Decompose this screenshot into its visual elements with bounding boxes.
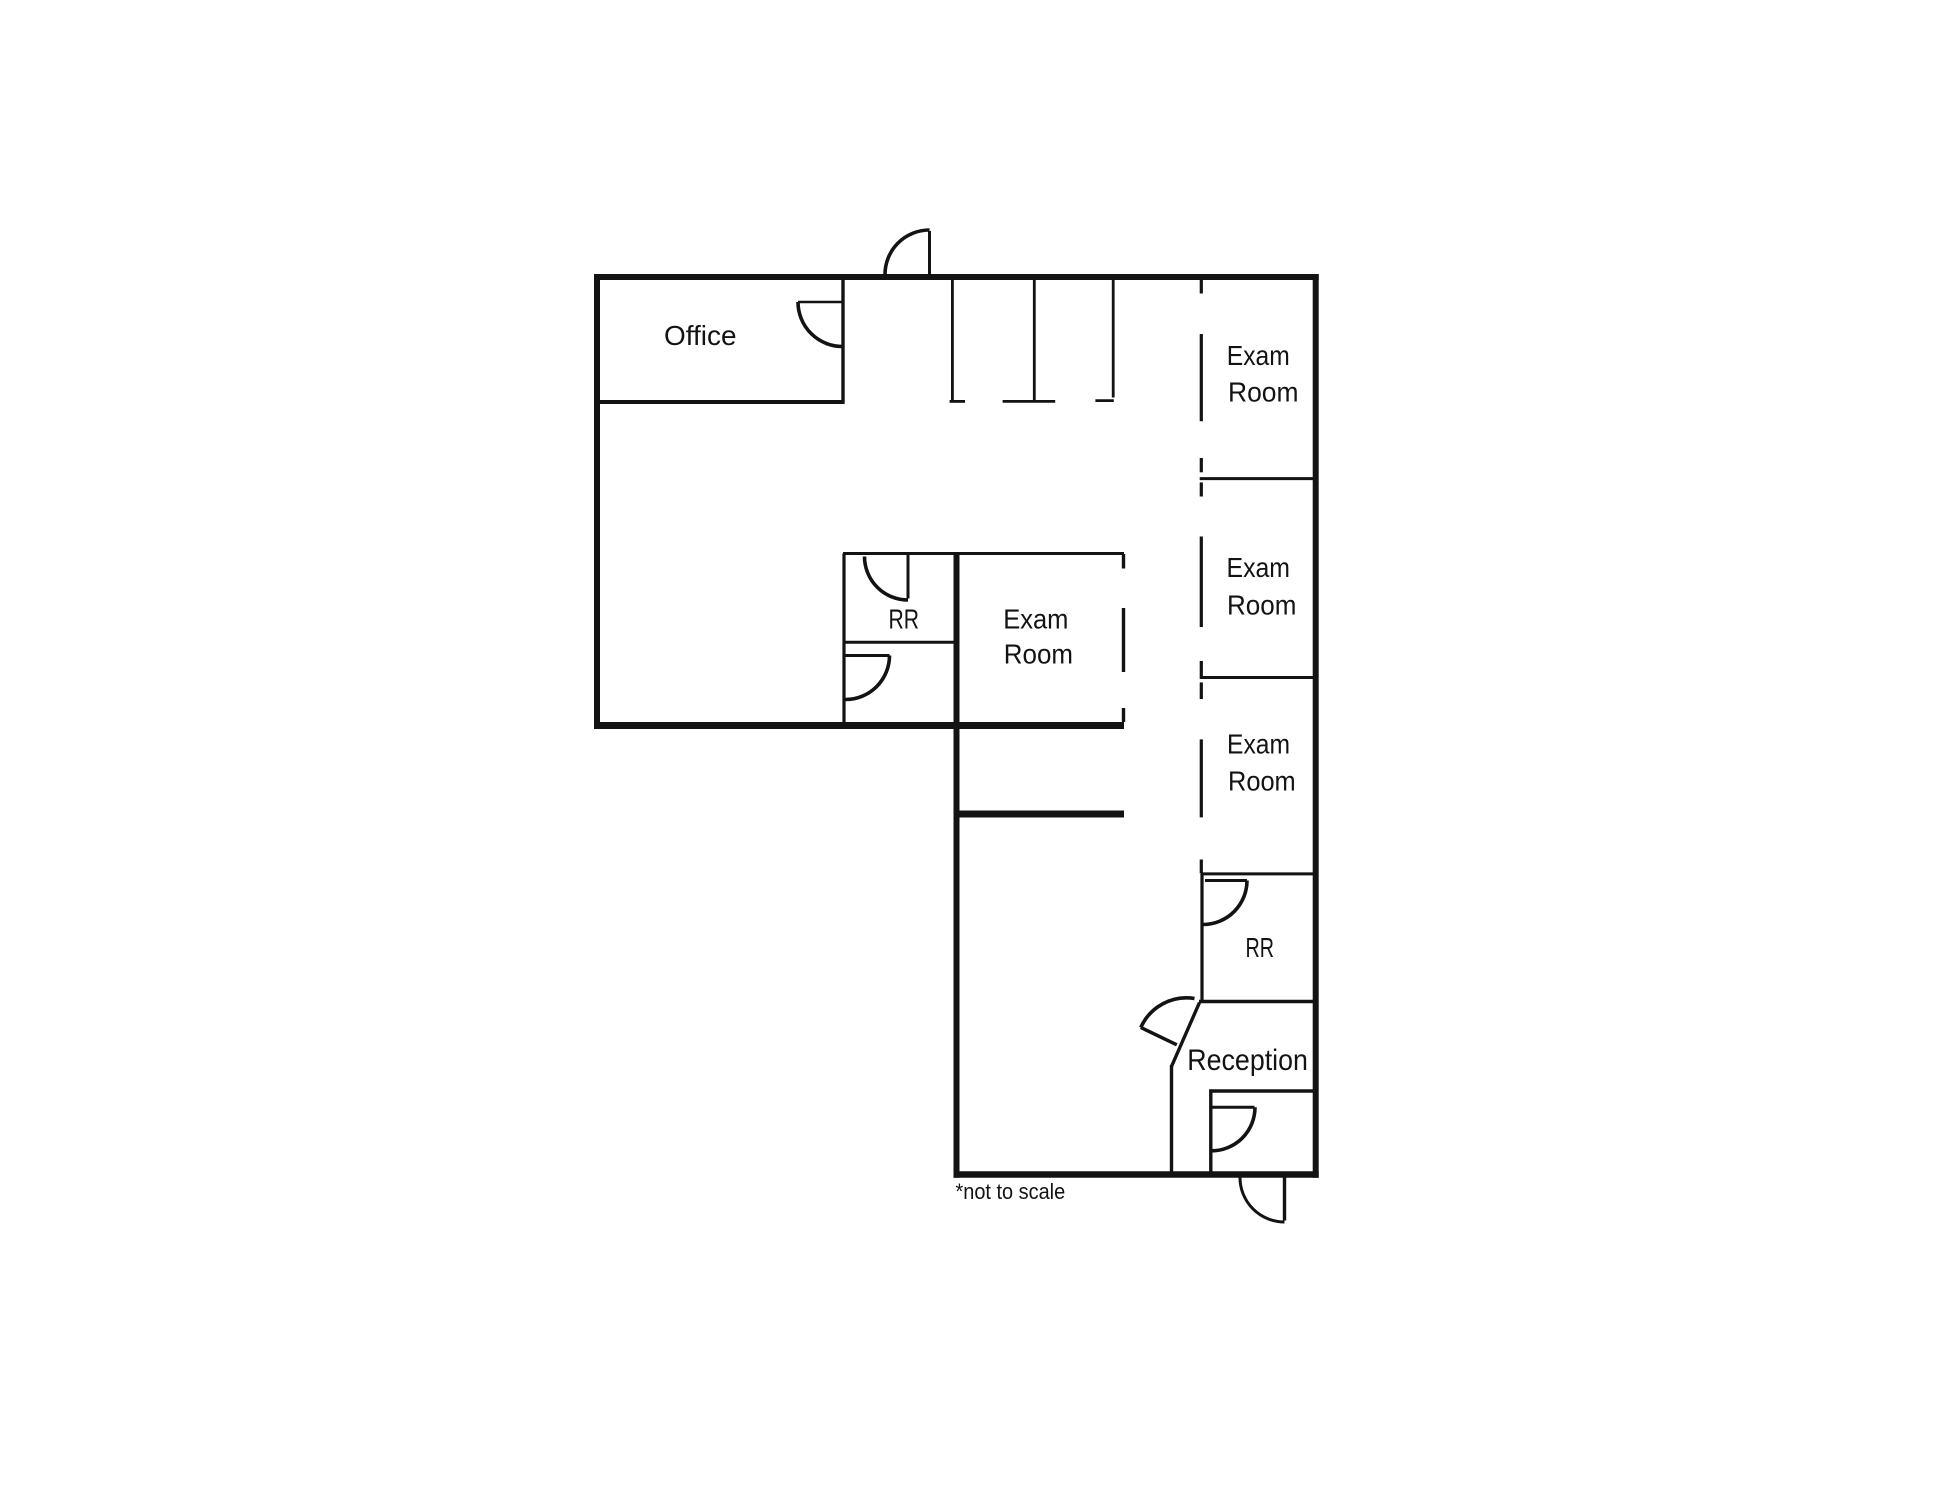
svg-text:Room: Room [1004,638,1073,669]
svg-text:RR: RR [889,603,920,634]
svg-text:Exam: Exam [1227,552,1291,583]
svg-text:Room: Room [1228,766,1296,797]
svg-text:Exam: Exam [1003,603,1068,634]
svg-text:Room: Room [1228,377,1299,408]
svg-text:Room: Room [1227,590,1296,621]
svg-text:Reception: Reception [1187,1044,1308,1077]
svg-text:*not to scale: *not to scale [956,1179,1066,1204]
svg-text:Office: Office [664,320,737,351]
svg-text:Exam: Exam [1227,340,1290,371]
svg-text:Exam: Exam [1227,729,1290,760]
svg-text:RR: RR [1246,932,1275,963]
